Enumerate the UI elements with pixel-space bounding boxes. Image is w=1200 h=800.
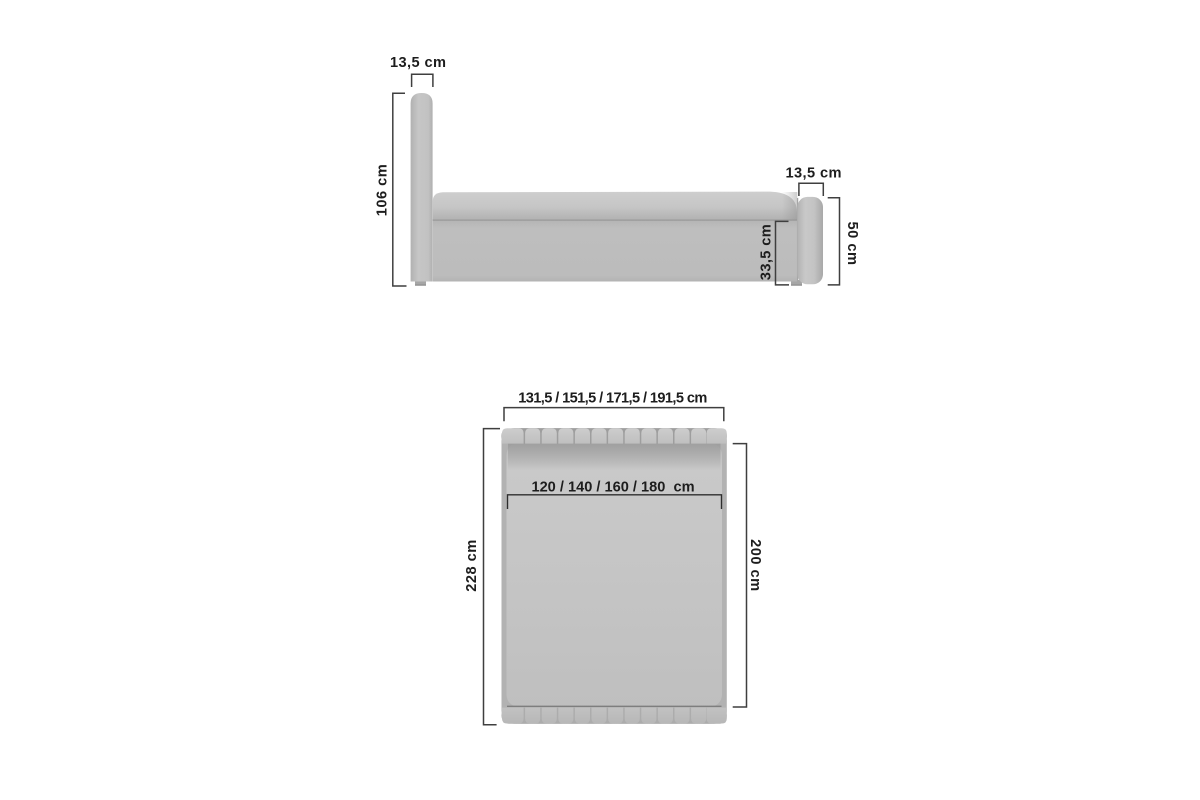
svg-text:50 cm: 50 cm [844, 222, 860, 266]
svg-text:120 / 140 / 160 / 180 cm: 120 / 140 / 160 / 180 cm [531, 479, 694, 495]
svg-text:33,5 cm: 33,5 cm [759, 224, 775, 280]
svg-text:13,5 cm: 13,5 cm [390, 55, 446, 71]
svg-text:106 cm: 106 cm [375, 164, 391, 217]
svg-text:131,5 / 151,5 / 171,5 / 191,5: 131,5 / 151,5 / 171,5 / 191,5 cm [518, 390, 707, 406]
svg-text:200 cm: 200 cm [747, 539, 763, 592]
svg-text:228 cm: 228 cm [464, 539, 480, 592]
svg-text:13,5 cm: 13,5 cm [786, 165, 842, 181]
